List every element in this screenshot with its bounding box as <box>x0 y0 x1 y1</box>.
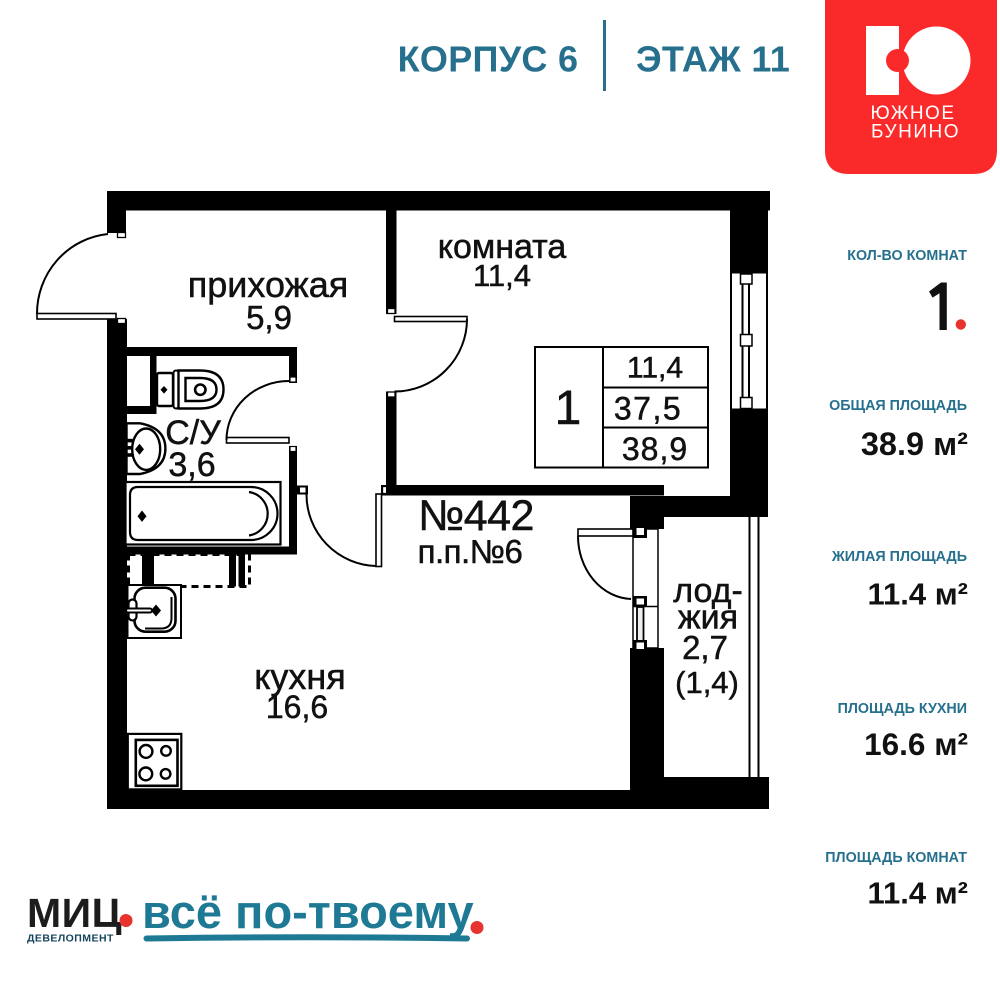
svg-text:16,6: 16,6 <box>266 689 328 725</box>
svg-text:КОРПУС 6: КОРПУС 6 <box>398 39 579 80</box>
svg-text:ДЕВЕЛОПМЕНТ: ДЕВЕЛОПМЕНТ <box>27 933 114 945</box>
svg-text:(1,4): (1,4) <box>675 665 739 700</box>
svg-text:16.6 м²: 16.6 м² <box>864 726 968 762</box>
svg-text:всё по-твоему: всё по-твоему <box>142 885 474 938</box>
svg-text:2,7: 2,7 <box>682 629 728 666</box>
svg-text:37,5: 37,5 <box>614 391 682 427</box>
svg-text:11,4: 11,4 <box>627 352 683 385</box>
svg-text:ОБЩАЯ ПЛОЩАДЬ: ОБЩАЯ ПЛОЩАДЬ <box>829 398 967 414</box>
svg-text:ЖИЛАЯ ПЛОЩАДЬ: ЖИЛАЯ ПЛОЩАДЬ <box>831 549 967 565</box>
svg-text:ЭТАЖ 11: ЭТАЖ 11 <box>636 39 790 80</box>
svg-text:1: 1 <box>555 382 582 435</box>
svg-text:11.4 м²: 11.4 м² <box>868 577 969 612</box>
svg-text:11,4: 11,4 <box>473 258 531 293</box>
svg-text:п.п.№6: п.п.№6 <box>418 533 523 570</box>
svg-text:5,9: 5,9 <box>246 299 292 336</box>
svg-text:ПЛОЩАДЬ КУХНИ: ПЛОЩАДЬ КУХНИ <box>838 701 967 717</box>
svg-text:МИЦ: МИЦ <box>27 890 122 936</box>
svg-text:38,9: 38,9 <box>622 431 688 467</box>
svg-text:ПЛОЩАДЬ КОМНАТ: ПЛОЩАДЬ КОМНАТ <box>825 850 967 866</box>
svg-text:3,6: 3,6 <box>168 446 215 484</box>
svg-text:КОЛ-ВО КОМНАТ: КОЛ-ВО КОМНАТ <box>847 248 967 264</box>
svg-text:БУНИНО: БУНИНО <box>871 122 960 143</box>
svg-text:11.4 м²: 11.4 м² <box>868 876 969 911</box>
svg-text:38.9 м²: 38.9 м² <box>861 426 968 462</box>
